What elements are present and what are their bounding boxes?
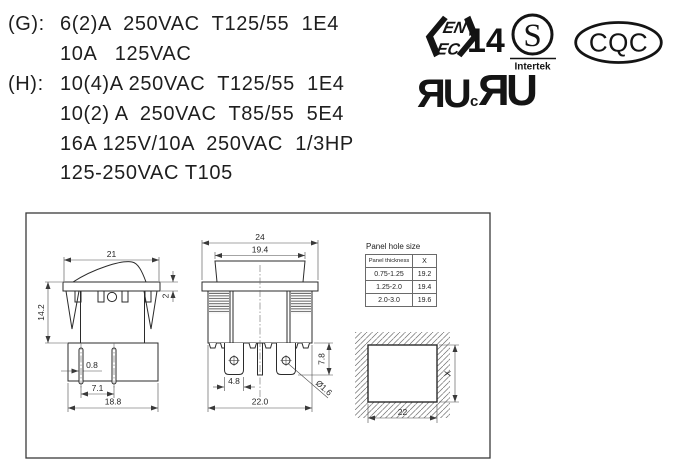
rating-g-label: (G): [8, 13, 45, 35]
x-header: X [413, 255, 437, 268]
panel-table-title: Panel hole size [366, 242, 420, 251]
rating-h-line4: 125-250VAC T105 [60, 162, 233, 184]
foot-tab [249, 343, 257, 348]
rating-g-line2: 10A 125VAC [60, 43, 191, 65]
table-row: 0.75-1.25 19.2 [366, 268, 437, 281]
panel-thickness-header: Panel thickness [366, 255, 413, 268]
panel-table: Panel thickness X 0.75-1.25 19.2 1.25-2.… [365, 254, 437, 307]
thickness-value: 0.75-1.25 [366, 268, 413, 281]
rating-h-line3: 16A 125V/10A 250VAC 1/3HP [60, 133, 354, 155]
enec-number: 14 [467, 24, 505, 58]
mounting-frame-side [63, 282, 160, 291]
dim-rocker-height: 2 [161, 271, 179, 302]
side-view: 21 2 14.2 0.8 [36, 249, 178, 412]
ul-recognized-mark-2-icon: ЯU [478, 69, 534, 113]
thickness-value: 1.25-2.0 [366, 281, 413, 294]
wing-serrations [291, 293, 311, 314]
enec-text-bottom: EC [435, 40, 463, 59]
dim-side-height-label: 14.2 [36, 304, 46, 321]
enec-text-top: EN [441, 18, 469, 37]
dimension-drawing: 21 2 14.2 0.8 [25, 212, 491, 461]
intertek-s-letter: S [523, 18, 541, 54]
panel-cutout: X 22 [355, 332, 459, 423]
dim-rocker-width: 19.4 [215, 245, 305, 260]
intertek-s-mark-icon: S Intertek [509, 13, 558, 73]
rocker-actuator-side [73, 262, 146, 282]
x-value: 19.6 [413, 294, 437, 307]
foot-tab [265, 343, 273, 348]
ul-recognized-mark-icon: ЯU [417, 74, 469, 114]
cutout-square [368, 345, 437, 402]
dim-frame-width-label: 24 [255, 232, 265, 242]
foot-tab [209, 343, 217, 348]
front-view: 24 19.4 7.8 4.8 [202, 232, 334, 412]
rating-g-line1: 6(2)A 250VAC T125/55 1E4 [60, 13, 339, 35]
frame-tab [98, 291, 104, 302]
dim-side-width-label: 21 [107, 249, 117, 259]
rating-h-line2: 10(2) A 250VAC T85/55 5E4 [60, 103, 344, 125]
dim-terminal-width-label: 4.8 [228, 376, 240, 386]
thickness-value: 2.0-3.0 [366, 294, 413, 307]
dim-terminal-height-label: 7.8 [317, 353, 327, 365]
dim-terminal-width: 4.8 [213, 376, 255, 391]
x-value: 19.4 [413, 281, 437, 294]
dim-side-height: 14.2 [36, 282, 67, 343]
table-row: 1.25-2.0 19.4 [366, 281, 437, 294]
cqc-text: CQC [589, 28, 648, 58]
cqc-logo-icon: CQC [574, 21, 664, 65]
table-row: 2.0-3.0 19.6 [366, 294, 437, 307]
dim-cutout-width-label: 22 [398, 407, 408, 417]
rating-h-label: (H): [8, 73, 44, 95]
x-value: 19.2 [413, 268, 437, 281]
dim-rocker-width-label: 19.4 [252, 245, 269, 255]
dim-pin-pitch-label: 7.1 [92, 383, 104, 393]
foot-tab [302, 343, 310, 348]
dim-base-width-label: 18.8 [105, 397, 122, 407]
dim-pin-thickness-label: 0.8 [86, 360, 98, 370]
dim-front-base-width-label: 22.0 [252, 397, 269, 407]
rating-h-line1: 10(4)A 250VAC T125/55 1E4 [60, 73, 345, 95]
datasheet-page: (G): 6(2)A 250VAC T125/55 1E4 10A 125VAC… [0, 0, 700, 476]
frame-tab [122, 291, 128, 302]
panel-table-header-row: Panel thickness X [366, 255, 437, 268]
dim-base-width: 18.8 [68, 383, 158, 412]
pivot-hole [107, 292, 116, 301]
dim-rocker-height-label: 2 [161, 293, 171, 298]
dim-cutout-height-label: X [443, 370, 453, 376]
wing-serrations [209, 293, 229, 314]
